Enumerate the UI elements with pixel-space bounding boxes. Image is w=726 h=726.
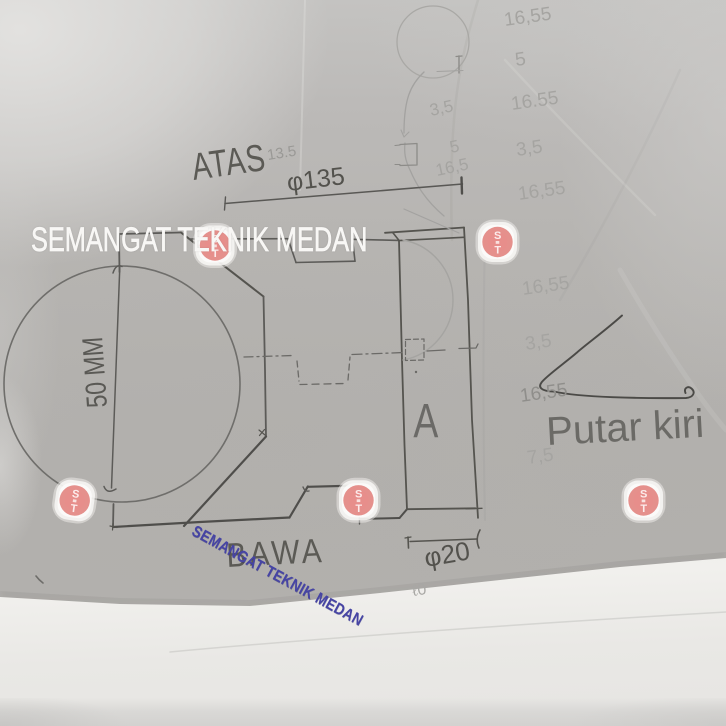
- svg-text:7,5: 7,5: [526, 444, 555, 468]
- svg-text:16,55: 16,55: [519, 380, 569, 407]
- svg-text:3,5: 3,5: [515, 136, 544, 160]
- svg-text:16,5: 16,5: [434, 154, 470, 179]
- svg-text:16,55: 16,55: [503, 4, 553, 31]
- svg-text:3,5: 3,5: [428, 96, 455, 119]
- svg-text:5: 5: [514, 49, 527, 71]
- svg-text:ATAS: ATAS: [189, 136, 268, 189]
- svg-text:A: A: [413, 395, 438, 449]
- svg-text:φ135: φ135: [285, 162, 346, 197]
- svg-text:16,55: 16,55: [517, 178, 567, 205]
- svg-text:Putar kiri: Putar kiri: [545, 402, 705, 454]
- svg-text:50 MM: 50 MM: [76, 336, 114, 409]
- svg-text:5: 5: [448, 136, 461, 157]
- svg-text:13.5: 13.5: [266, 143, 298, 164]
- svg-text:φ20: φ20: [422, 535, 472, 572]
- svg-text:ℓ0: ℓ0: [411, 581, 427, 600]
- svg-text:3,5: 3,5: [524, 330, 553, 354]
